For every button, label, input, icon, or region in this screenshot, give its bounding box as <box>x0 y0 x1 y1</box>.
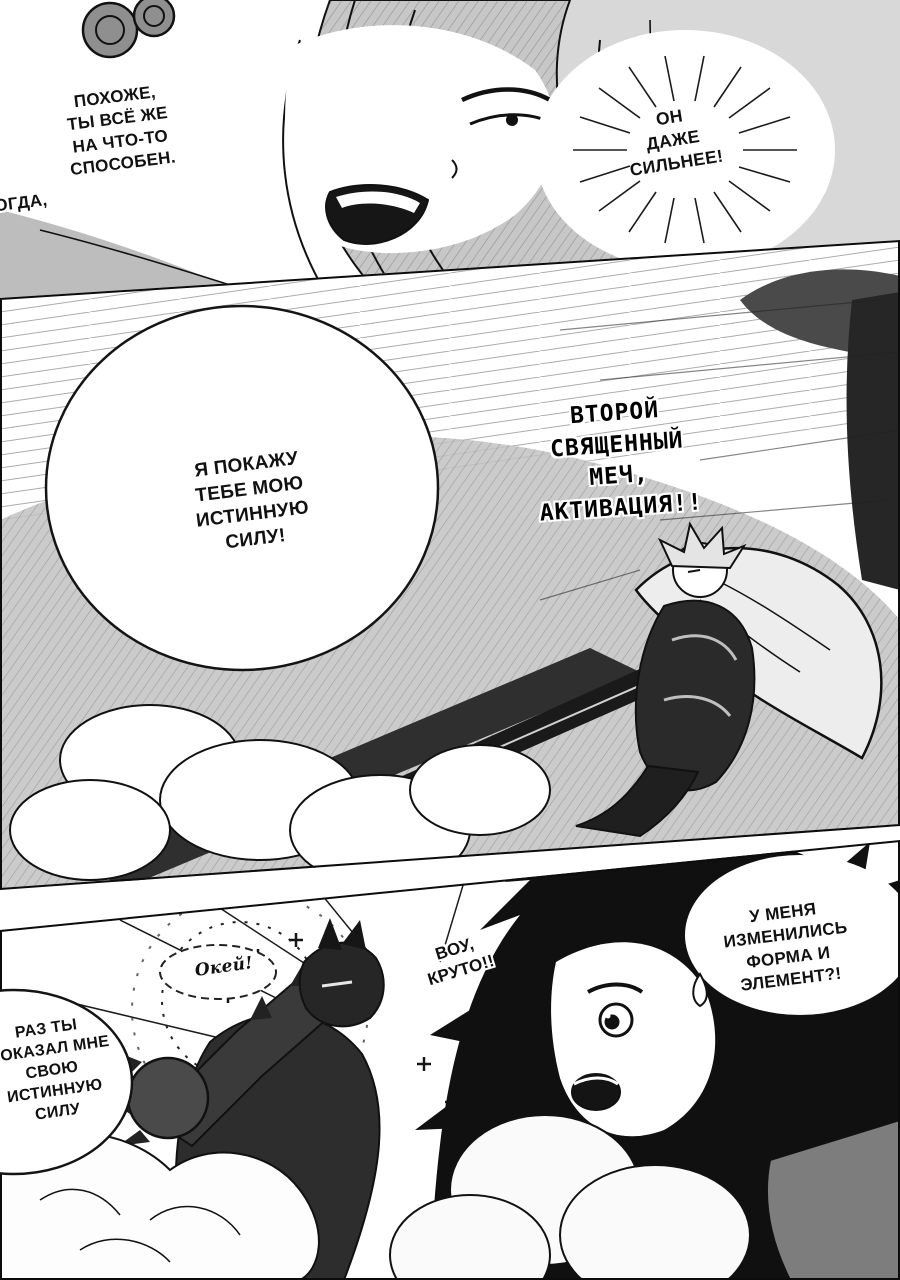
panel-middle <box>0 230 900 900</box>
shout-text-holy-sword: ВТОРОЙ СВЯЩЕННЫЙ МЕЧ, АКТИВАЦИЯ!! <box>492 390 744 534</box>
face <box>551 942 715 1136</box>
manga-page: ПОХОЖЕ, ТЫ ВСЁ ЖЕ НА ЧТО-ТО СПОСОБЕН. ТО… <box>0 0 900 1280</box>
